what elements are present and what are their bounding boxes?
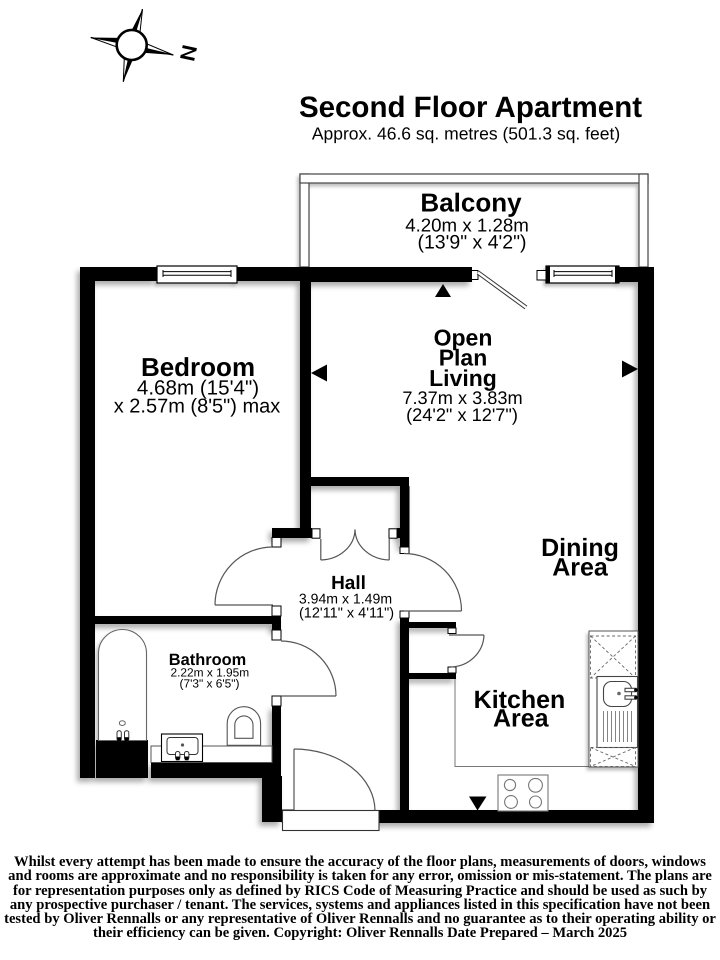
svg-text:Balcony: Balcony	[420, 188, 522, 218]
svg-text:Area: Area	[493, 705, 550, 733]
svg-text:Second Floor Apartment: Second Floor Apartment	[299, 91, 642, 124]
svg-text:Area: Area	[552, 554, 609, 582]
svg-text:3.94m x 1.49m: 3.94m x 1.49m	[299, 591, 392, 607]
svg-text:(7'3" x 6'5"): (7'3" x 6'5")	[180, 677, 240, 691]
svg-text:x 2.57m (8'5") max: x 2.57m (8'5") max	[114, 396, 281, 418]
svg-text:(13'9" x 4'2"): (13'9" x 4'2")	[417, 232, 526, 254]
svg-text:(12'11" x 4'11"): (12'11" x 4'11")	[299, 606, 394, 622]
svg-text:(24'2" x 12'7"): (24'2" x 12'7")	[406, 405, 518, 425]
svg-text:Approx. 46.6 sq. metres (501.3: Approx. 46.6 sq. metres (501.3 sq. feet)	[312, 124, 620, 144]
